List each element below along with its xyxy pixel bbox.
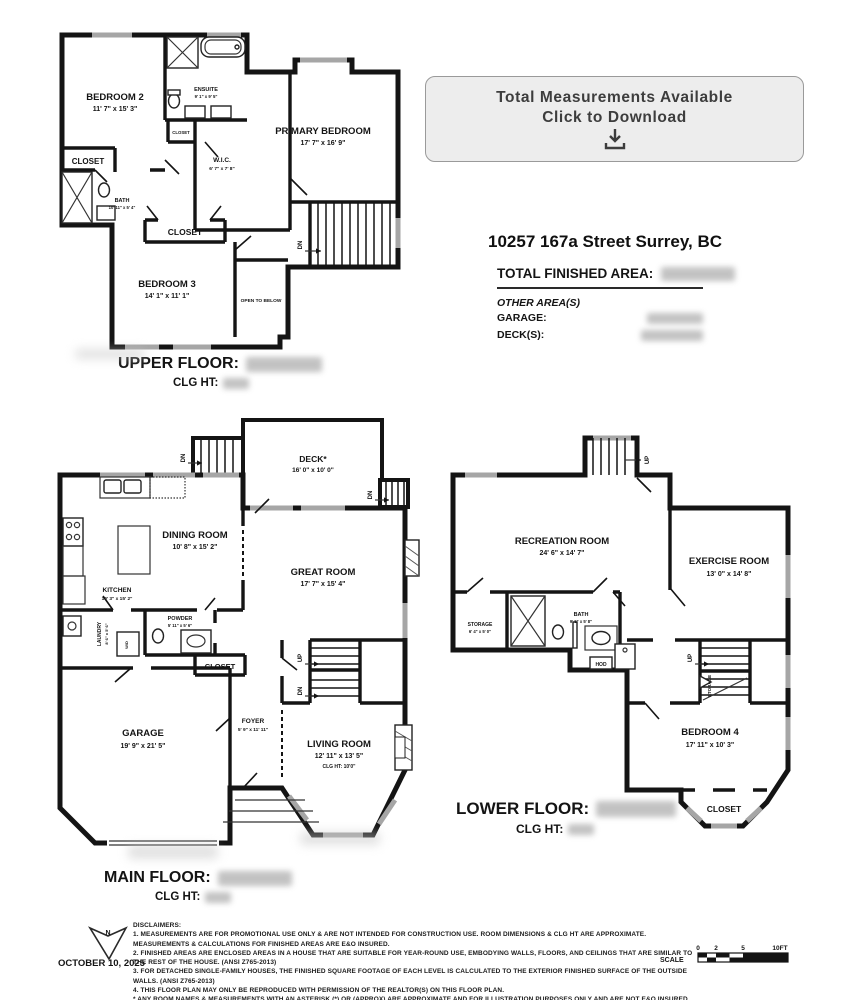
room-label-closet-left: CLOSET: [72, 157, 105, 166]
download-measurements-button[interactable]: Total Measurements Available Click to Do…: [425, 76, 804, 162]
room-dims-living: 12' 11" x 13' 5": [315, 753, 364, 760]
lower-floor-title-text: LOWER FLOOR:: [456, 799, 589, 819]
floorplan-main: DN DN DECK* 16' 0" x 10' 0": [55, 418, 427, 860]
lower-walls: [453, 438, 788, 826]
room-dims-exercise: 13' 0" x 14' 8": [707, 571, 752, 578]
room-dims-garage: 19' 9" x 21' 5": [121, 743, 166, 750]
room-dims-rec: 24' 6" x 14' 7": [540, 550, 585, 557]
open-to-below-label: OPEN TO BELOW: [241, 298, 282, 304]
main-clg-row: CLG HT:: [155, 891, 231, 903]
room-label-rec: RECREATION ROOM: [515, 536, 609, 547]
room-label-wic: W.I.C.: [213, 157, 231, 164]
disclaimer-line-3: 3. FOR DETACHED SINGLE-FAMILY HOUSES, TH…: [133, 967, 699, 986]
stairs-dn-label: DN: [298, 687, 304, 696]
blurred-patch-upper: [75, 349, 145, 359]
floor-plan-page: Total Measurements Available Click to Do…: [0, 0, 844, 1000]
room-label-closet: CLOSET: [205, 662, 236, 671]
redacted-lower-clg: [568, 824, 594, 835]
hod-label: HOD: [595, 662, 607, 668]
redacted-deck-area-value: [641, 330, 703, 341]
room-label-closet: CLOSET: [707, 804, 742, 814]
redacted-total-area-value: [661, 267, 735, 281]
lower-clg-row: CLG HT:: [516, 822, 594, 836]
total-finished-area-label: TOTAL FINISHED AREA:: [497, 266, 653, 281]
scale-bar: 0 2 5 10FT: [684, 942, 792, 970]
main-walls: [60, 475, 419, 847]
floorplan-upper: BEDROOM 2 11' 7" x 15' 3" ENSUITE 9' 1" …: [55, 20, 407, 372]
room-label-kitchen: KITCHEN: [103, 587, 132, 594]
blurred-patch-garage: [128, 845, 218, 859]
room-dims-bath: 9' 5" x 5' 8": [570, 619, 592, 624]
north-arrow-icon: N: [86, 922, 130, 962]
understair-storage-label: STORAGE: [707, 675, 712, 697]
upper-floor-title: UPPER FLOOR:: [118, 355, 322, 373]
room-dims-laundry: 8' 6" x 5' 6": [104, 623, 109, 644]
main-clg-label: CLG HT:: [155, 891, 200, 903]
room-dims-ensuite: 9' 1" x 9' 5": [195, 94, 218, 99]
scale-tick-0: 0: [696, 945, 700, 952]
room-label-closet-mid: CLOSET: [168, 227, 203, 237]
download-button-line1: Total Measurements Available: [496, 88, 733, 107]
main-floor-title: MAIN FLOOR:: [104, 869, 292, 887]
deck-stairs2-dn-label: DN: [368, 491, 374, 500]
property-address: 10257 167a Street Surrey, BC: [488, 232, 722, 252]
disclaimer-line-4: 4. THIS FLOOR PLAN MAY ONLY BE REPRODUCE…: [133, 986, 699, 995]
disclaimers-header: DISCLAIMERS:: [133, 921, 699, 930]
stairs-up-label-top: UP: [645, 456, 651, 464]
divider-line: [497, 287, 703, 289]
room-label-living: LIVING ROOM: [307, 739, 371, 750]
redacted-lower-sqft: [596, 801, 676, 817]
lower-floor-title: LOWER FLOOR:: [456, 799, 676, 819]
room-label-powder: POWDER: [168, 616, 193, 622]
scale-label: SCALE: [660, 957, 684, 964]
room-dims-kitchen: 10' 3" x 15' 2": [102, 596, 133, 602]
room-label-bath: BATH: [574, 612, 589, 618]
scale-bar-segments: [698, 953, 788, 962]
washer-dryer-label: W/D: [124, 641, 129, 649]
stairs-up-label: UP: [688, 654, 694, 662]
upper-clg-row: CLG HT:: [173, 377, 249, 389]
download-icon: [600, 128, 630, 150]
disclaimer-line-1: 1. MEASUREMENTS ARE FOR PROMOTIONAL USE …: [133, 930, 699, 949]
plan-date: OCTOBER 10, 2025: [58, 958, 145, 969]
room-dims-foyer: 5' 9" x 11' 11": [238, 727, 268, 733]
room-clg-living: CLG HT: 10'0": [322, 764, 356, 770]
room-dims-dining: 10' 8" x 15' 2": [173, 544, 218, 551]
room-label-laundry: LAUNDRY: [97, 621, 103, 646]
lower-clg-label: CLG HT:: [516, 822, 563, 836]
room-label-exercise: EXERCISE ROOM: [689, 556, 769, 567]
redacted-upper-clg: [223, 378, 249, 389]
room-label-foyer: FOYER: [242, 718, 265, 725]
room-dims-wic: 6' 7" x 7' 8": [209, 166, 235, 172]
room-dims-great: 17' 7" x 15' 4": [301, 581, 346, 588]
upper-walls: [60, 35, 398, 347]
disclaimer-line-2: 2. FINISHED AREAS ARE ENCLOSED AREAS IN …: [133, 949, 699, 968]
room-dims-bedroom2: 11' 7" x 15' 3": [93, 106, 138, 113]
redacted-garage-area-value: [647, 313, 703, 324]
upper-clg-label: CLG HT:: [173, 377, 218, 389]
room-dims-bedroom3: 14' 1" x 11' 1": [145, 293, 190, 300]
room-dims-bedroom4: 17' 11" x 10' 3": [686, 742, 735, 749]
scale-tick-10: 10FT: [772, 945, 787, 952]
main-floor-title-text: MAIN FLOOR:: [104, 869, 211, 887]
room-label-garage: GARAGE: [122, 728, 164, 739]
download-button-line2: Click to Download: [542, 108, 687, 127]
room-dims-bath: 10' 11" x 5' 4": [109, 205, 136, 210]
room-label-great: GREAT ROOM: [291, 567, 356, 578]
room-dims-primary: 17' 7" x 16' 9": [301, 140, 346, 147]
disclaimer-line-5: * ANY ROOM NAMES & MEASUREMENTS WITH AN …: [133, 995, 699, 1000]
deck-stairs-dn-label: DN: [181, 454, 187, 463]
redacted-main-clg: [205, 892, 231, 903]
stairs-dn-label: DN: [298, 241, 304, 250]
room-label-bedroom4: BEDROOM 4: [681, 727, 739, 738]
room-label-deck: DECK*: [299, 454, 327, 464]
floorplan-lower: RECREATION ROOM 24' 6" x 14' 7" EXERCISE…: [445, 430, 792, 842]
stairs-up-label: UP: [298, 654, 304, 662]
room-dims-storage: 6' 4" x 5' 0": [469, 629, 491, 634]
scale-tick-2: 2: [714, 945, 718, 952]
redacted-upper-sqft: [246, 357, 322, 372]
room-label-closet-small: CLOSET: [172, 130, 190, 135]
room-label-storage: STORAGE: [468, 622, 493, 628]
redacted-main-sqft: [218, 871, 292, 886]
room-dims-powder: 5' 11" x 5' 6": [168, 623, 192, 628]
garage-area-label: GARAGE:: [497, 312, 547, 324]
room-label-bedroom3: BEDROOM 3: [138, 279, 196, 290]
disclaimers-block: DISCLAIMERS: 1. MEASUREMENTS ARE FOR PRO…: [133, 921, 699, 1000]
room-label-bath: BATH: [115, 198, 130, 204]
north-letter: N: [105, 930, 110, 937]
room-label-dining: DINING ROOM: [162, 530, 228, 541]
decks-area-label: DECK(S):: [497, 329, 544, 341]
blurred-patch-porch: [300, 832, 380, 845]
room-dims-deck: 16' 0" x 10' 0": [292, 467, 334, 474]
room-label-bedroom2: BEDROOM 2: [86, 92, 144, 103]
other-areas-label: OTHER AREA(S): [497, 297, 580, 309]
room-label-primary: PRIMARY BEDROOM: [275, 126, 371, 137]
room-label-ensuite: ENSUITE: [194, 87, 218, 93]
scale-tick-5: 5: [741, 945, 745, 952]
